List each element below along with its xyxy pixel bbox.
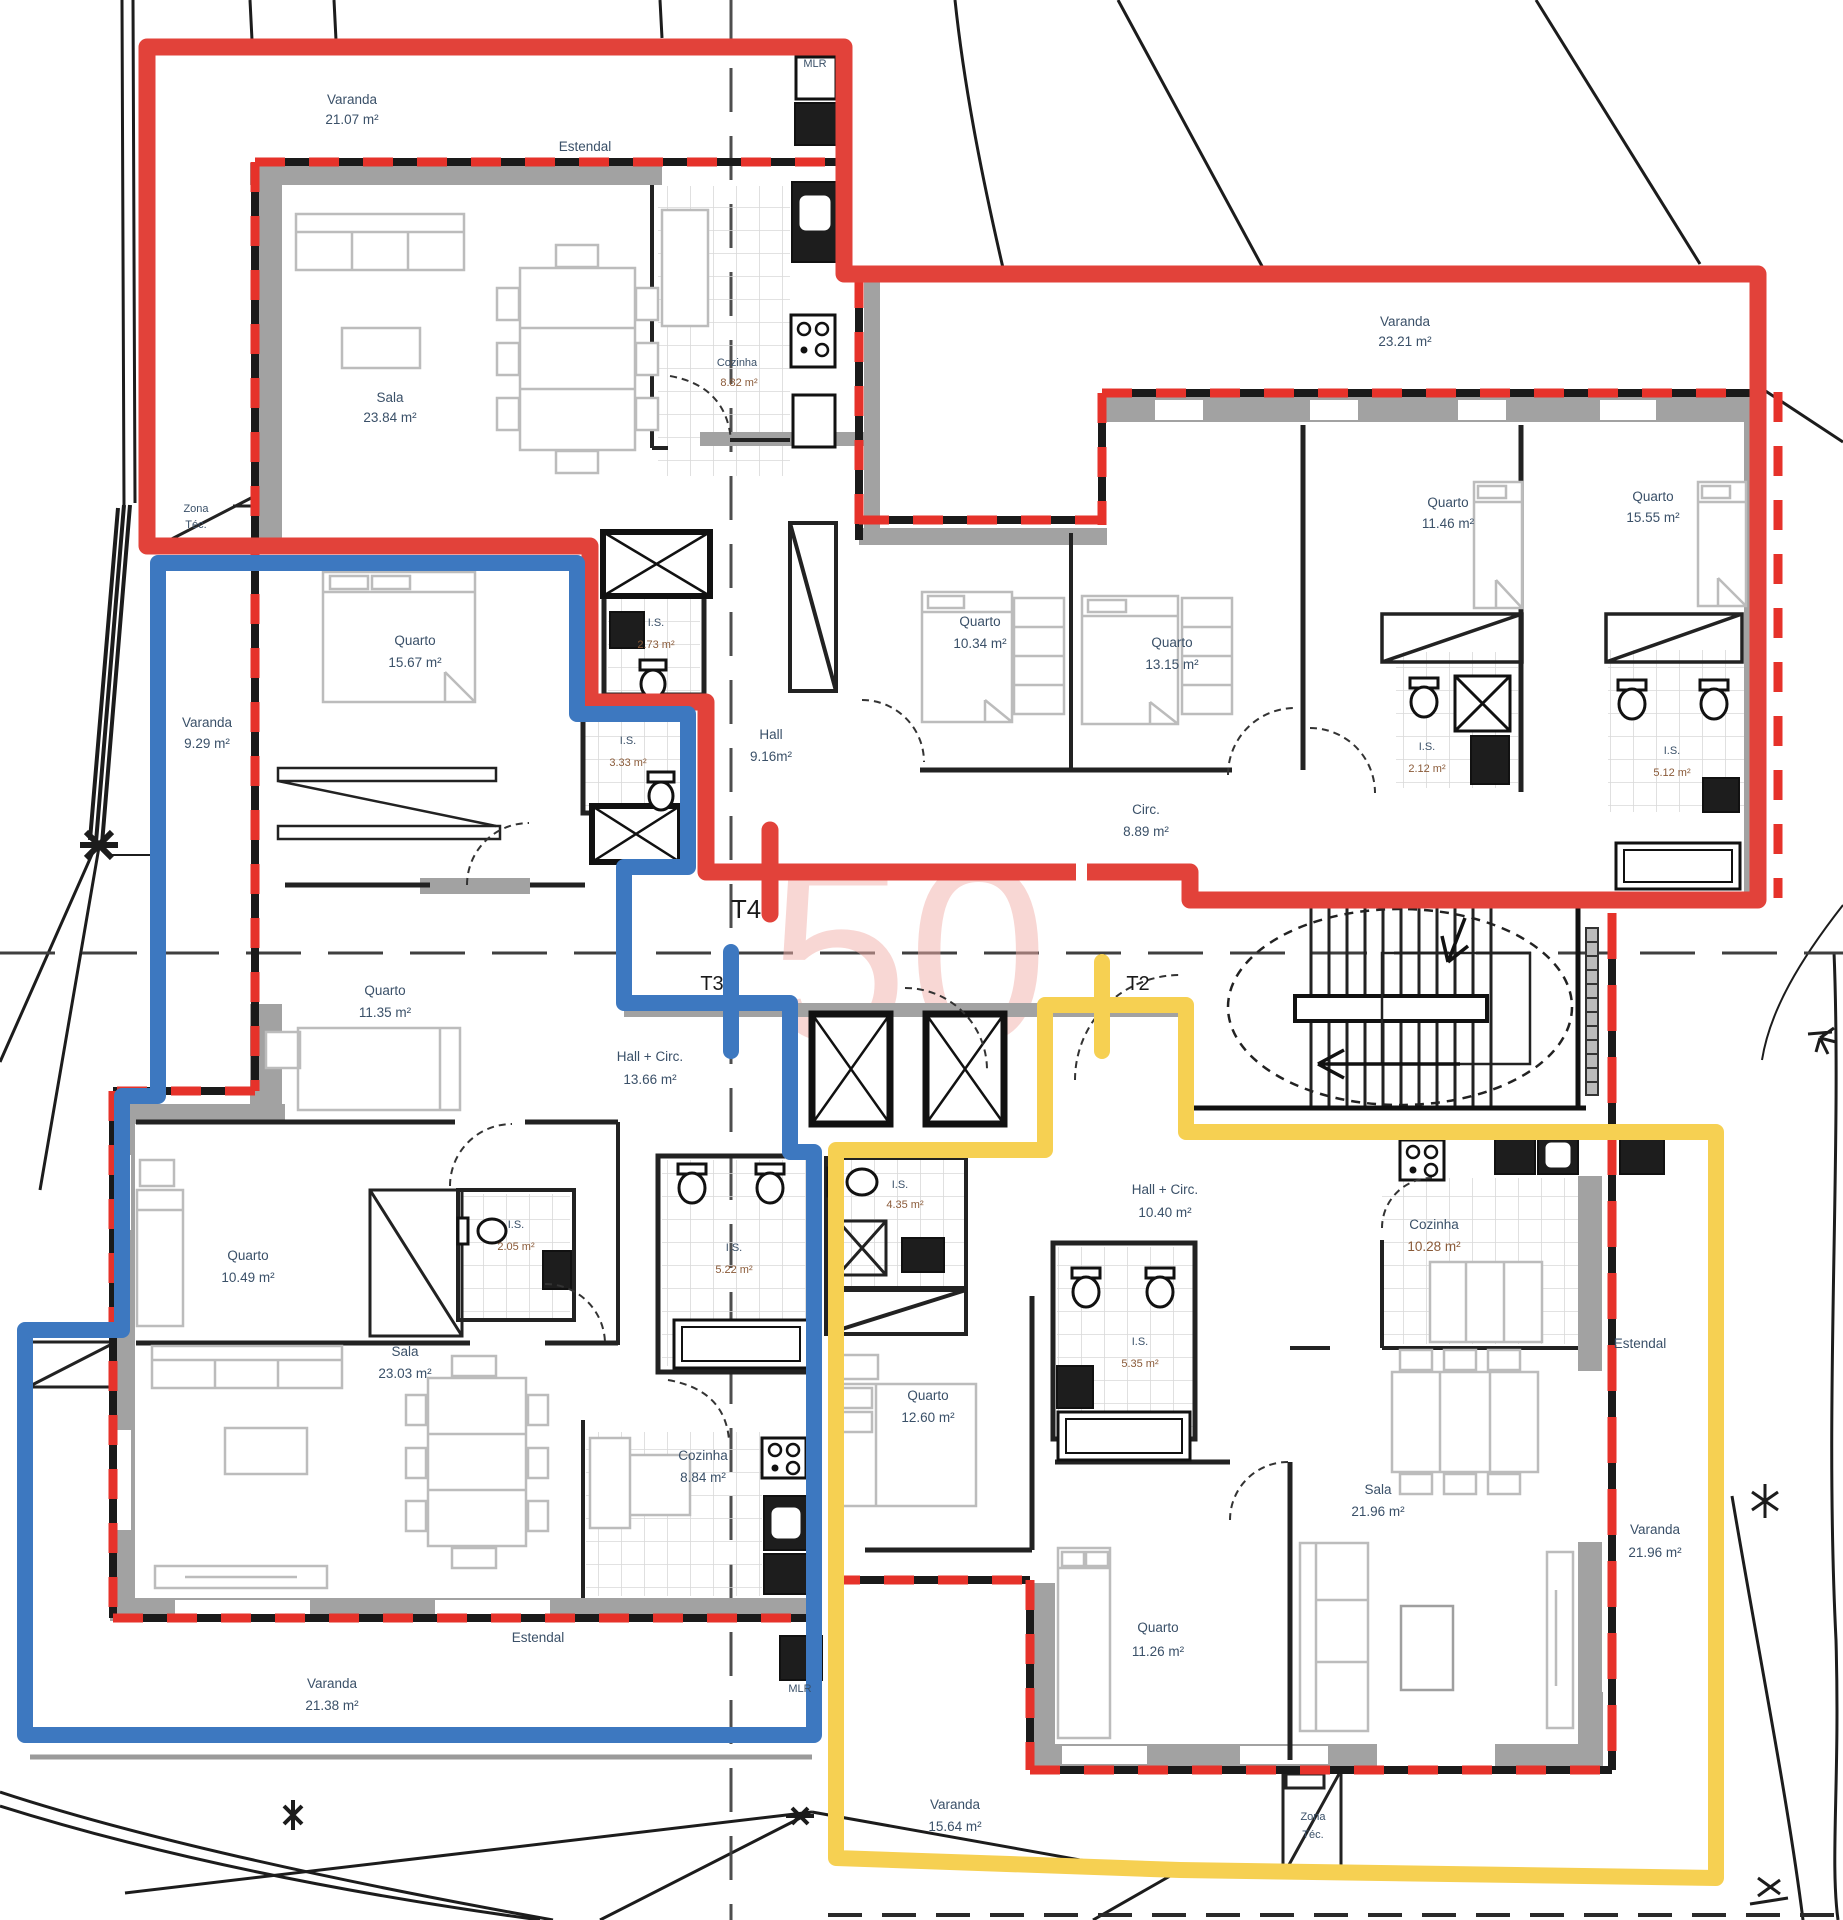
svg-text:Hall + Circ.: Hall + Circ.	[617, 1049, 683, 1064]
svg-text:MLR: MLR	[788, 1683, 811, 1695]
svg-text:10.49 m²: 10.49 m²	[221, 1270, 275, 1285]
svg-text:T4: T4	[731, 894, 761, 924]
svg-text:5.35 m²: 5.35 m²	[1121, 1358, 1159, 1370]
svg-text:I.S.: I.S.	[1132, 1336, 1149, 1348]
svg-text:Sala: Sala	[1364, 1482, 1392, 1497]
svg-text:Circ.: Circ.	[1132, 802, 1160, 817]
svg-text:Hall + Circ.: Hall + Circ.	[1132, 1182, 1198, 1197]
svg-text:Varanda: Varanda	[307, 1676, 358, 1691]
svg-text:15.64 m²: 15.64 m²	[928, 1819, 982, 1834]
svg-text:11.35 m²: 11.35 m²	[359, 1005, 412, 1020]
svg-text:3.33 m²: 3.33 m²	[609, 757, 647, 769]
svg-text:13.66 m²: 13.66 m²	[623, 1072, 677, 1087]
svg-text:T2: T2	[1126, 973, 1149, 995]
svg-text:2.05 m²: 2.05 m²	[497, 1241, 535, 1253]
svg-text:I.S.: I.S.	[620, 735, 637, 747]
svg-text:Quarto: Quarto	[1632, 489, 1673, 504]
svg-text:Sala: Sala	[376, 390, 404, 405]
svg-text:Zona: Zona	[183, 503, 209, 515]
svg-text:11.46 m²: 11.46 m²	[1422, 516, 1475, 531]
svg-text:Cozinha: Cozinha	[717, 357, 758, 369]
svg-text:21.96 m²: 21.96 m²	[1351, 1504, 1405, 1519]
svg-text:I.S.: I.S.	[648, 617, 665, 629]
svg-text:I.S.: I.S.	[892, 1179, 909, 1191]
svg-text:Quarto: Quarto	[1137, 1620, 1178, 1635]
svg-text:2.12 m²: 2.12 m²	[1408, 763, 1446, 775]
svg-text:Varanda: Varanda	[327, 92, 378, 107]
svg-text:Quarto: Quarto	[1427, 495, 1468, 510]
svg-text:Quarto: Quarto	[907, 1388, 948, 1403]
svg-text:Cozinha: Cozinha	[1409, 1217, 1459, 1232]
svg-text:Téc.: Téc.	[1302, 1829, 1323, 1841]
svg-text:T3: T3	[700, 973, 723, 995]
svg-text:Hall: Hall	[759, 727, 782, 742]
svg-text:Quarto: Quarto	[364, 983, 405, 998]
svg-text:10.28 m²: 10.28 m²	[1407, 1239, 1461, 1254]
svg-text:Quarto: Quarto	[959, 614, 1000, 629]
svg-text:8.84 m²: 8.84 m²	[680, 1470, 726, 1485]
svg-text:Zona: Zona	[1300, 1811, 1326, 1823]
svg-text:12.60 m²: 12.60 m²	[901, 1410, 955, 1425]
svg-text:Estendal: Estendal	[512, 1630, 565, 1645]
svg-text:Estendal: Estendal	[1614, 1336, 1667, 1351]
svg-text:10.40 m²: 10.40 m²	[1138, 1205, 1192, 1220]
svg-text:13.15 m²: 13.15 m²	[1145, 657, 1199, 672]
svg-text:15.67 m²: 15.67 m²	[388, 655, 442, 670]
svg-text:I.S.: I.S.	[1664, 745, 1681, 757]
svg-text:Quarto: Quarto	[227, 1248, 268, 1263]
svg-text:Varanda: Varanda	[930, 1797, 981, 1812]
svg-text:5.22 m²: 5.22 m²	[715, 1264, 753, 1276]
svg-text:I.S.: I.S.	[508, 1219, 525, 1231]
svg-text:Cozinha: Cozinha	[678, 1448, 728, 1463]
svg-text:5.12 m²: 5.12 m²	[1653, 767, 1691, 779]
svg-text:MLR: MLR	[803, 58, 826, 70]
svg-text:4.35 m²: 4.35 m²	[886, 1199, 924, 1211]
svg-text:I.S.: I.S.	[1419, 741, 1436, 753]
svg-text:21.38 m²: 21.38 m²	[305, 1698, 359, 1713]
svg-text:8.89 m²: 8.89 m²	[1123, 824, 1169, 839]
svg-text:Sala: Sala	[391, 1344, 419, 1359]
svg-text:Quarto: Quarto	[394, 633, 435, 648]
svg-text:15.55 m²: 15.55 m²	[1626, 510, 1680, 525]
svg-text:8.82 m²: 8.82 m²	[720, 377, 758, 389]
svg-text:Varanda: Varanda	[1630, 1522, 1681, 1537]
svg-text:23.84 m²: 23.84 m²	[363, 410, 417, 425]
svg-text:23.21 m²: 23.21 m²	[1378, 334, 1432, 349]
svg-text:2.73 m²: 2.73 m²	[637, 639, 675, 651]
svg-text:Quarto: Quarto	[1151, 635, 1192, 650]
svg-text:9.29 m²: 9.29 m²	[184, 736, 230, 751]
svg-text:Varanda: Varanda	[1380, 314, 1431, 329]
svg-text:21.07 m²: 21.07 m²	[325, 112, 379, 127]
svg-text:Estendal: Estendal	[559, 139, 612, 154]
svg-text:I.S.: I.S.	[726, 1242, 743, 1254]
svg-text:10.34 m²: 10.34 m²	[953, 636, 1007, 651]
svg-text:11.26 m²: 11.26 m²	[1132, 1644, 1185, 1659]
svg-text:21.96 m²: 21.96 m²	[1628, 1545, 1682, 1560]
svg-text:Téc.: Téc.	[185, 519, 206, 531]
svg-text:Varanda: Varanda	[182, 715, 233, 730]
svg-text:9.16m²: 9.16m²	[750, 749, 793, 764]
svg-text:23.03 m²: 23.03 m²	[378, 1366, 432, 1381]
